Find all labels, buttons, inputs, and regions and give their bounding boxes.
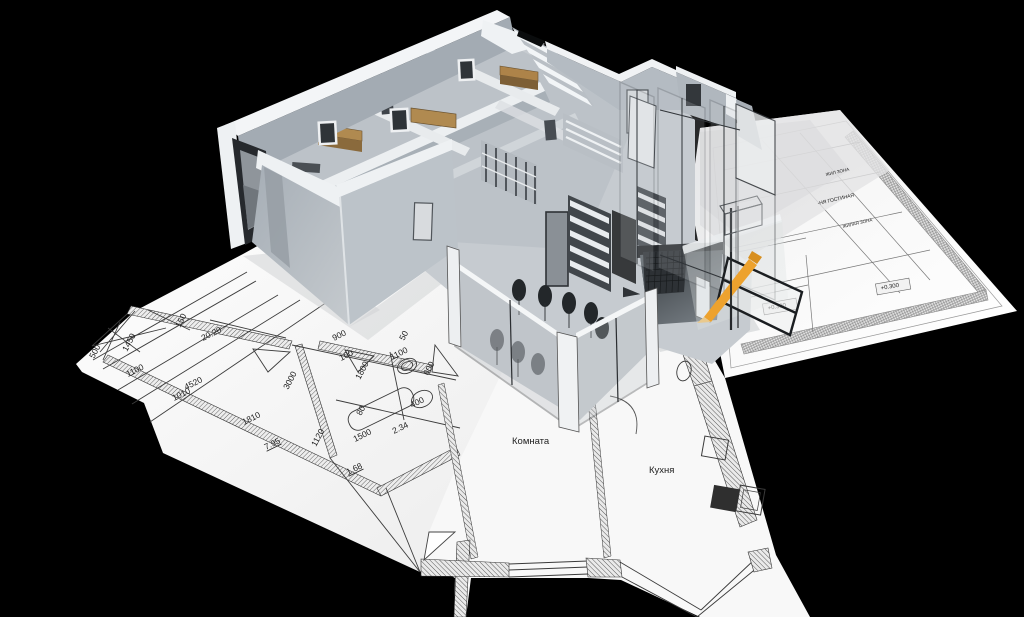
svg-text:Комната: Комната (512, 436, 550, 447)
svg-text:Кухня: Кухня (649, 465, 674, 476)
